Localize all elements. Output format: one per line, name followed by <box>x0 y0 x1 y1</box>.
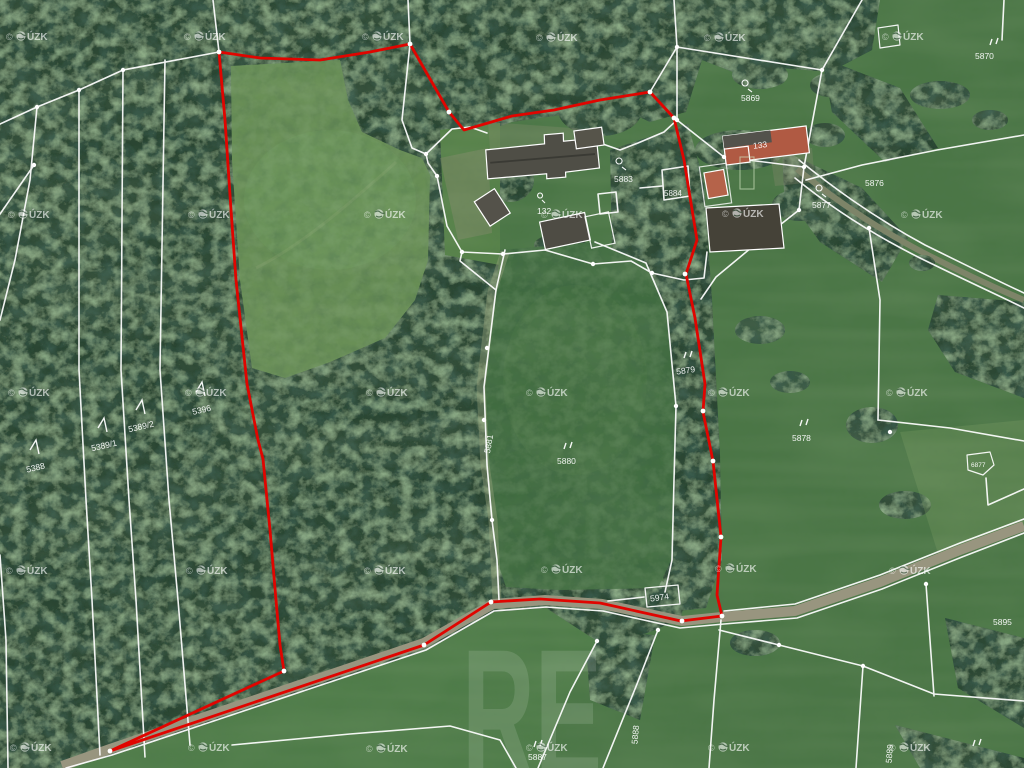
svg-text:5869: 5869 <box>741 93 760 103</box>
svg-text:5878: 5878 <box>792 433 811 443</box>
svg-text:5888: 5888 <box>629 725 641 745</box>
svg-text:5880: 5880 <box>557 456 576 466</box>
svg-text:5895: 5895 <box>993 617 1012 627</box>
svg-text:133: 133 <box>752 139 768 151</box>
svg-text:5883: 5883 <box>614 174 633 184</box>
svg-text:5877: 5877 <box>812 200 831 210</box>
svg-text:5870: 5870 <box>975 51 994 61</box>
svg-text:5884: 5884 <box>664 189 682 198</box>
svg-text:RE: RE <box>462 612 602 768</box>
svg-text:5876: 5876 <box>865 178 884 188</box>
svg-text:6877: 6877 <box>971 462 986 469</box>
